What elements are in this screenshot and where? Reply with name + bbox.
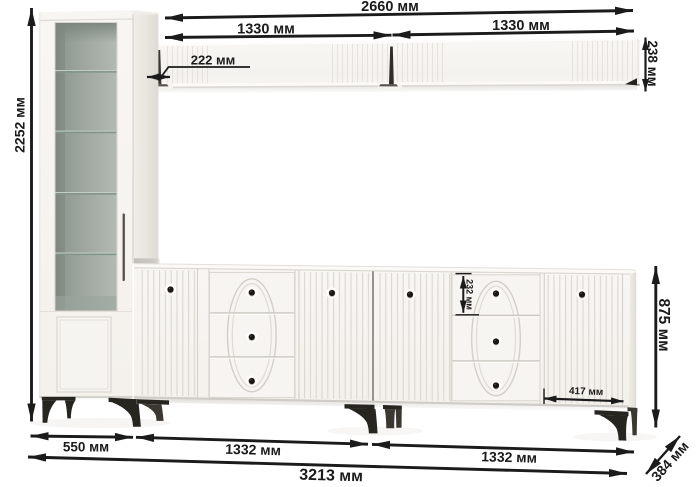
svg-text:232 мм: 232 мм — [464, 279, 474, 310]
svg-text:2660 мм: 2660 мм — [361, 0, 419, 15]
svg-text:238 мм: 238 мм — [645, 40, 660, 86]
svg-text:550 мм: 550 мм — [63, 440, 109, 455]
svg-text:1330 мм: 1330 мм — [492, 18, 550, 34]
svg-text:222 мм: 222 мм — [191, 53, 236, 68]
svg-text:1332 мм: 1332 мм — [481, 448, 537, 465]
svg-text:1332 мм: 1332 мм — [225, 441, 281, 458]
svg-text:384 мм: 384 мм — [648, 438, 692, 484]
svg-text:417 мм: 417 мм — [569, 386, 604, 398]
svg-text:2252 мм: 2252 мм — [12, 97, 28, 153]
svg-text:3213 мм: 3213 мм — [299, 467, 363, 486]
svg-text:1330 мм: 1330 мм — [237, 22, 295, 38]
svg-text:875 мм: 875 мм — [655, 298, 672, 351]
